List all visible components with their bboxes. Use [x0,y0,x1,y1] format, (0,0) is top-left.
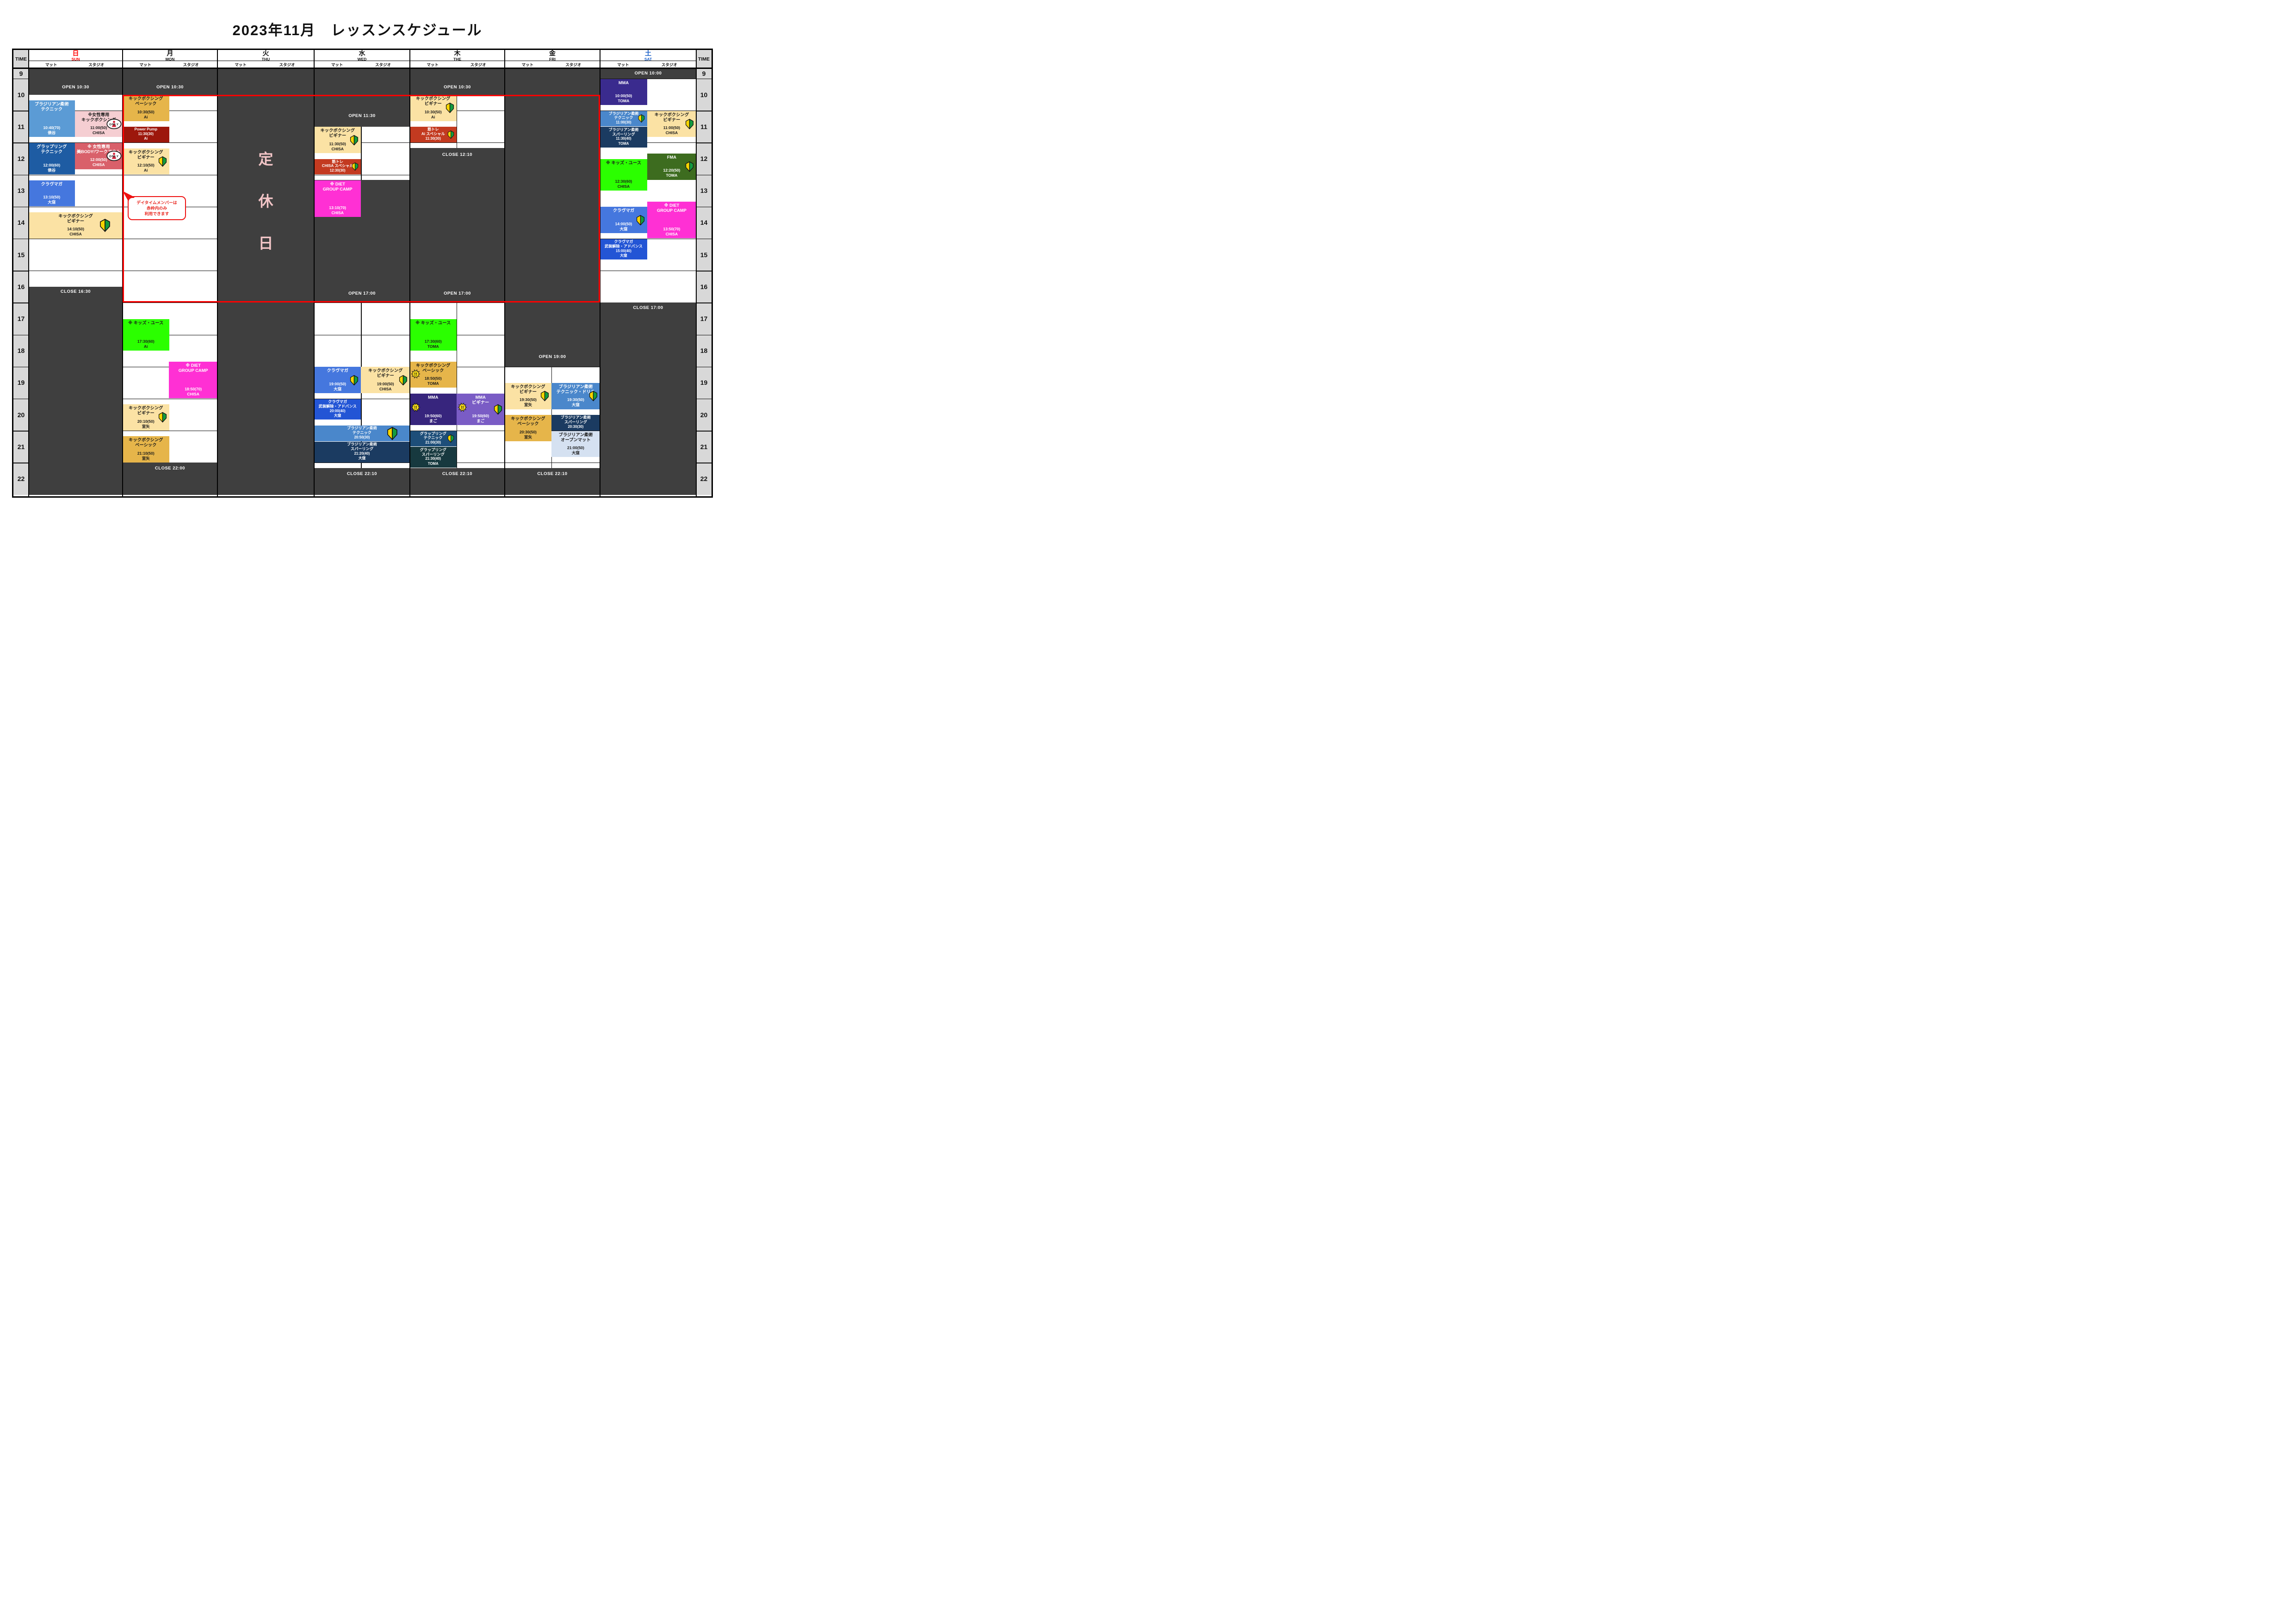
schedule-board: 2023年11月 レッスンスケジュール TIME9101112131415161… [0,0,715,505]
page-title: 2023年11月 レッスンスケジュール [0,19,715,39]
daytime-note-callout: デイタイムメンバーは赤枠内のみ利用できます [128,196,186,220]
callout-text: デイタイムメンバーは赤枠内のみ利用できます [129,198,185,219]
daytime-red-frame [123,95,600,303]
